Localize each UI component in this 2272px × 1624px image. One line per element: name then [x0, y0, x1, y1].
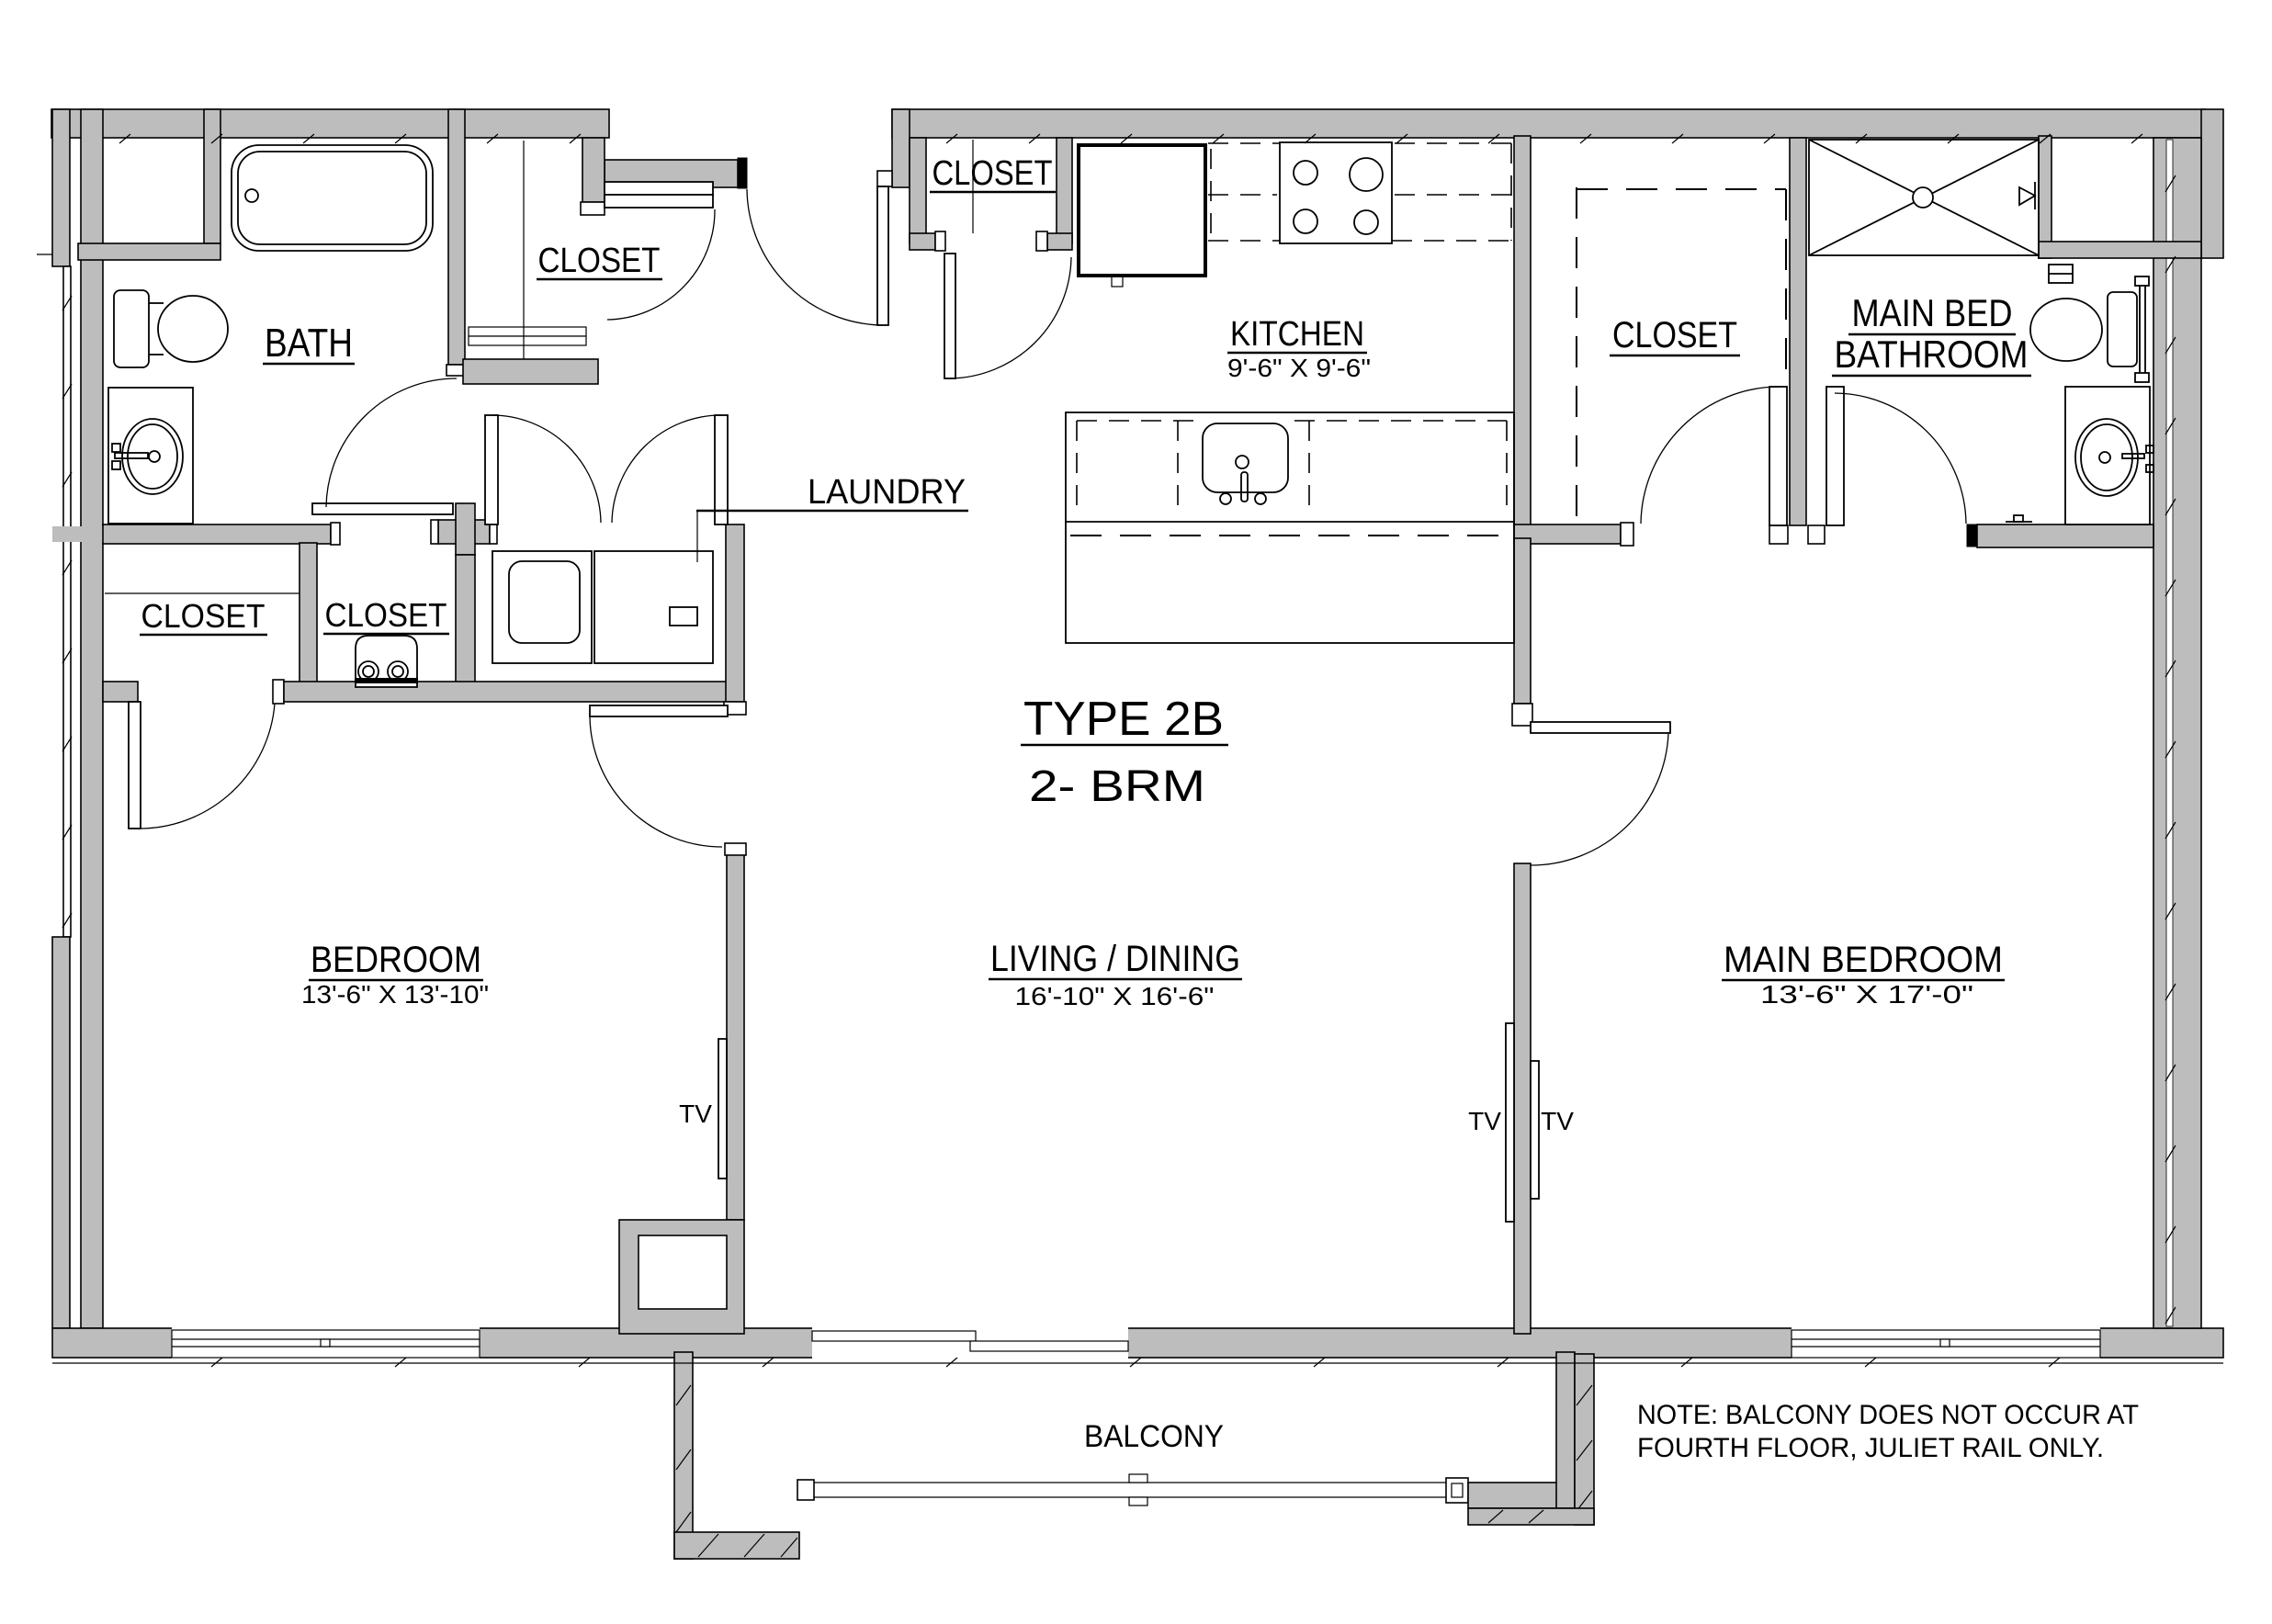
- svg-text:TV: TV: [1468, 1107, 1501, 1135]
- svg-text:13'-6" X 17'-0": 13'-6" X 17'-0": [1760, 980, 1973, 1009]
- svg-text:TYPE 2B: TYPE 2B: [1023, 693, 1224, 746]
- svg-text:BEDROOM: BEDROOM: [311, 940, 481, 980]
- svg-text:16'-10" X 16'-6": 16'-10" X 16'-6": [1015, 982, 1215, 1010]
- svg-text:13'-6" X 13'-10": 13'-6" X 13'-10": [301, 980, 489, 1009]
- svg-text:KITCHEN: KITCHEN: [1230, 315, 1364, 354]
- svg-text:LIVING / DINING: LIVING / DINING: [990, 939, 1240, 979]
- svg-text:MAIN BED: MAIN BED: [1852, 291, 2013, 334]
- svg-text:2- BRM: 2- BRM: [1029, 762, 1205, 811]
- svg-text:NOTE: BALCONY DOES NOT OCCUR A: NOTE: BALCONY DOES NOT OCCUR AT: [1637, 1400, 2139, 1430]
- svg-text:LAUNDRY: LAUNDRY: [808, 473, 966, 512]
- svg-text:BATHROOM: BATHROOM: [1835, 333, 2029, 376]
- svg-text:BALCONY: BALCONY: [1084, 1419, 1224, 1454]
- svg-text:TV: TV: [1541, 1107, 1574, 1135]
- svg-text:TV: TV: [679, 1100, 712, 1128]
- svg-text:CLOSET: CLOSET: [325, 596, 447, 634]
- svg-text:FOURTH FLOOR, JULIET RAIL ONLY: FOURTH FLOOR, JULIET RAIL ONLY.: [1637, 1433, 2104, 1463]
- svg-text:CLOSET: CLOSET: [538, 242, 661, 280]
- svg-text:BATH: BATH: [265, 321, 353, 366]
- svg-text:CLOSET: CLOSET: [933, 154, 1053, 193]
- svg-text:CLOSET: CLOSET: [141, 597, 266, 635]
- svg-text:MAIN BEDROOM: MAIN BEDROOM: [1724, 940, 2003, 980]
- svg-text:CLOSET: CLOSET: [1612, 315, 1737, 355]
- svg-text:9'-6" X 9'-6": 9'-6" X 9'-6": [1227, 354, 1371, 382]
